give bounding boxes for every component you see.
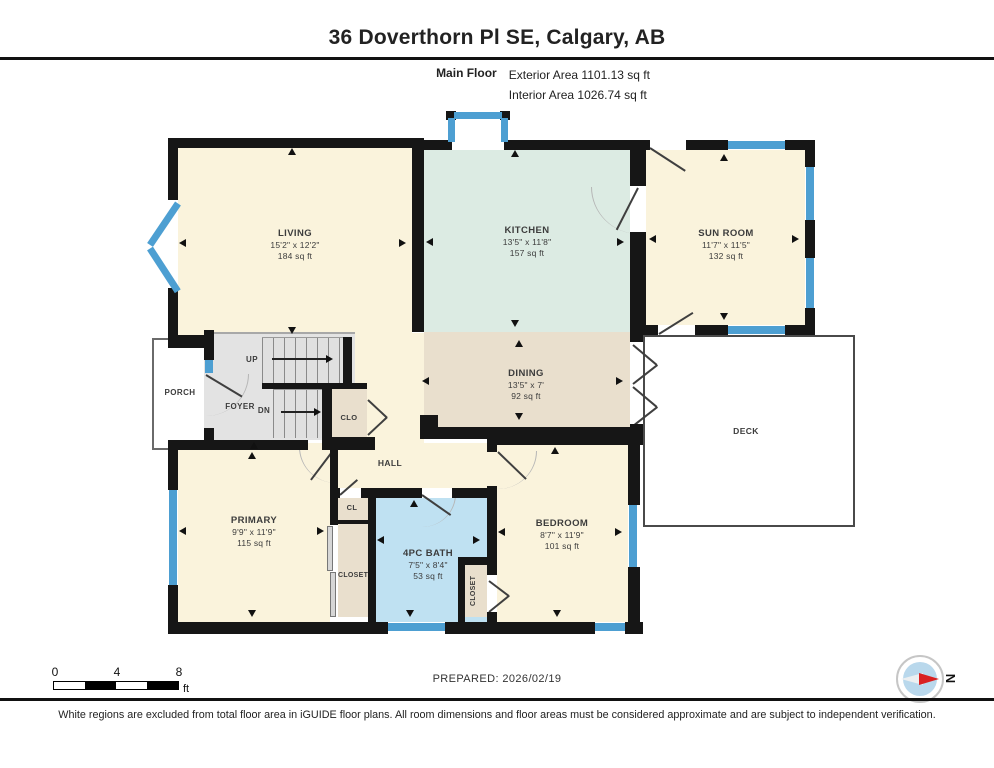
page-title: 36 Doverthorn Pl SE, Calgary, AB — [0, 26, 994, 50]
room-label-sunroom: SUN ROOM 11'7" x 11'5" 132 sq ft — [666, 228, 786, 262]
room-name: KITCHEN — [467, 225, 587, 237]
room-label-primary: PRIMARY 9'9" x 11'9" 115 sq ft — [194, 515, 314, 549]
compass-north-label: N — [943, 674, 958, 683]
window — [388, 623, 445, 631]
wall — [625, 622, 643, 634]
dim-arrow — [649, 235, 656, 243]
wall — [330, 488, 340, 498]
room-name: SUN ROOM — [666, 228, 786, 240]
room-label-dining: DINING 13'5" x 7' 92 sq ft — [466, 368, 586, 402]
dim-arrow — [410, 500, 418, 507]
clo-label: CLO — [334, 413, 364, 422]
stairs-down-label: DN — [252, 406, 276, 415]
room-label-living: LIVING 15'2" x 12'2" 184 sq ft — [235, 228, 355, 262]
dim-arrow — [616, 377, 623, 385]
wall — [168, 448, 178, 490]
wall — [204, 330, 214, 360]
wall — [322, 389, 332, 440]
bay-window — [147, 247, 181, 294]
window — [728, 141, 785, 149]
room-dims: 13'5" x 7' — [466, 380, 586, 391]
room-area: 92 sq ft — [466, 391, 586, 402]
dim-arrow — [179, 527, 186, 535]
wall — [805, 220, 815, 258]
window — [629, 505, 637, 567]
room-name: BEDROOM — [502, 518, 622, 530]
wall — [686, 140, 728, 150]
wall — [630, 140, 646, 186]
compass-icon — [896, 655, 944, 703]
room-label-bedroom: BEDROOM 8'7" x 11'9" 101 sq ft — [502, 518, 622, 552]
room-area: 184 sq ft — [235, 251, 355, 262]
window — [806, 167, 814, 220]
window — [169, 490, 177, 585]
stairs-up-arrow-head — [326, 355, 333, 363]
wall — [630, 232, 646, 335]
dim-arrow — [511, 320, 519, 327]
stairs-up-label: UP — [240, 355, 264, 364]
cl-label: CL — [340, 503, 364, 512]
dim-arrow — [553, 610, 561, 617]
wall — [330, 440, 338, 525]
title-divider — [0, 57, 994, 60]
dim-arrow — [426, 238, 433, 246]
dim-arrow — [288, 327, 296, 334]
room-name: PRIMARY — [194, 515, 314, 527]
room-dims: 8'7" x 11'9" — [502, 530, 622, 541]
sliding-door — [327, 526, 333, 571]
room-dims: 9'9" x 11'9" — [194, 527, 314, 538]
primary-closet-label: CLOSET — [338, 572, 368, 579]
wall — [168, 440, 308, 450]
wall — [262, 383, 367, 389]
dim-arrow — [399, 239, 406, 247]
disclaimer-text: White regions are excluded from total fl… — [0, 709, 994, 721]
room-area: 115 sq ft — [194, 538, 314, 549]
dim-arrow — [377, 536, 384, 544]
room-area: 101 sq ft — [502, 541, 622, 552]
dim-arrow — [179, 239, 186, 247]
wall — [168, 622, 388, 634]
dim-arrow — [551, 447, 559, 454]
wall — [695, 325, 728, 335]
bay-window — [147, 202, 181, 247]
room-dims: 13'5" x 11'8" — [467, 237, 587, 248]
room-dims: 15'2" x 12'2" — [235, 240, 355, 251]
wall — [630, 332, 643, 342]
wall — [487, 486, 497, 575]
primary-closet-floor — [338, 524, 368, 617]
wall — [504, 140, 650, 150]
dim-arrow — [515, 413, 523, 420]
bedroom-closet-label: CLOSET — [470, 568, 482, 614]
wall — [487, 427, 643, 445]
dim-arrow — [511, 150, 519, 157]
wall — [805, 148, 815, 167]
dim-arrow — [317, 527, 324, 535]
window — [806, 258, 814, 308]
footer-divider — [0, 698, 994, 701]
stair-landing-edge — [208, 332, 355, 334]
wall — [487, 443, 497, 452]
room-area: 157 sq ft — [467, 248, 587, 259]
wall — [343, 337, 352, 383]
dim-arrow — [288, 148, 296, 155]
wall — [628, 439, 640, 505]
window — [595, 623, 625, 631]
dim-arrow — [248, 610, 256, 617]
wall — [330, 520, 368, 524]
wall — [168, 138, 178, 200]
window — [454, 112, 502, 119]
dim-arrow — [248, 452, 256, 459]
dim-arrow — [617, 238, 624, 246]
window — [448, 118, 455, 142]
wall — [412, 140, 424, 332]
wall — [445, 622, 595, 634]
room-name: 4PC BATH — [368, 548, 488, 560]
prepared-date: PREPARED: 2026/02/19 — [0, 673, 994, 685]
porch-label: PORCH — [152, 388, 208, 397]
room-label-kitchen: KITCHEN 13'5" x 11'8" 157 sq ft — [467, 225, 587, 259]
room-name: LIVING — [235, 228, 355, 240]
floor-summary: Main Floor Exterior Area 1101.13 sq ft I… — [46, 66, 994, 106]
floor-plan-page: 36 Doverthorn Pl SE, Calgary, AB Main Fl… — [0, 0, 994, 768]
dim-arrow — [250, 442, 258, 449]
stairs-down-arrow-shaft — [281, 411, 314, 413]
exterior-area: Exterior Area 1101.13 sq ft — [509, 66, 650, 86]
stairs-down-arrow-head — [314, 408, 321, 416]
room-dims: 11'7" x 11'5" — [666, 240, 786, 251]
wall — [168, 138, 424, 148]
window — [205, 360, 213, 373]
window — [728, 326, 785, 334]
dim-arrow — [422, 377, 429, 385]
window — [501, 118, 508, 142]
room-name: DINING — [466, 368, 586, 380]
wall — [630, 424, 643, 439]
deck-label: DECK — [716, 426, 776, 436]
dim-arrow — [515, 340, 523, 347]
room-area: 132 sq ft — [666, 251, 786, 262]
dim-arrow — [720, 313, 728, 320]
dim-arrow — [473, 536, 480, 544]
sliding-door — [330, 572, 336, 617]
wall — [785, 325, 815, 335]
dim-arrow — [406, 610, 414, 617]
wall — [361, 488, 422, 498]
dim-arrow — [792, 235, 799, 243]
interior-area: Interior Area 1026.74 sq ft — [509, 86, 650, 106]
stairs-up-arrow-shaft — [272, 358, 326, 360]
floor-label: Main Floor — [436, 66, 497, 106]
hall-label: HALL — [360, 458, 420, 468]
dim-arrow — [720, 154, 728, 161]
wall — [628, 567, 640, 622]
